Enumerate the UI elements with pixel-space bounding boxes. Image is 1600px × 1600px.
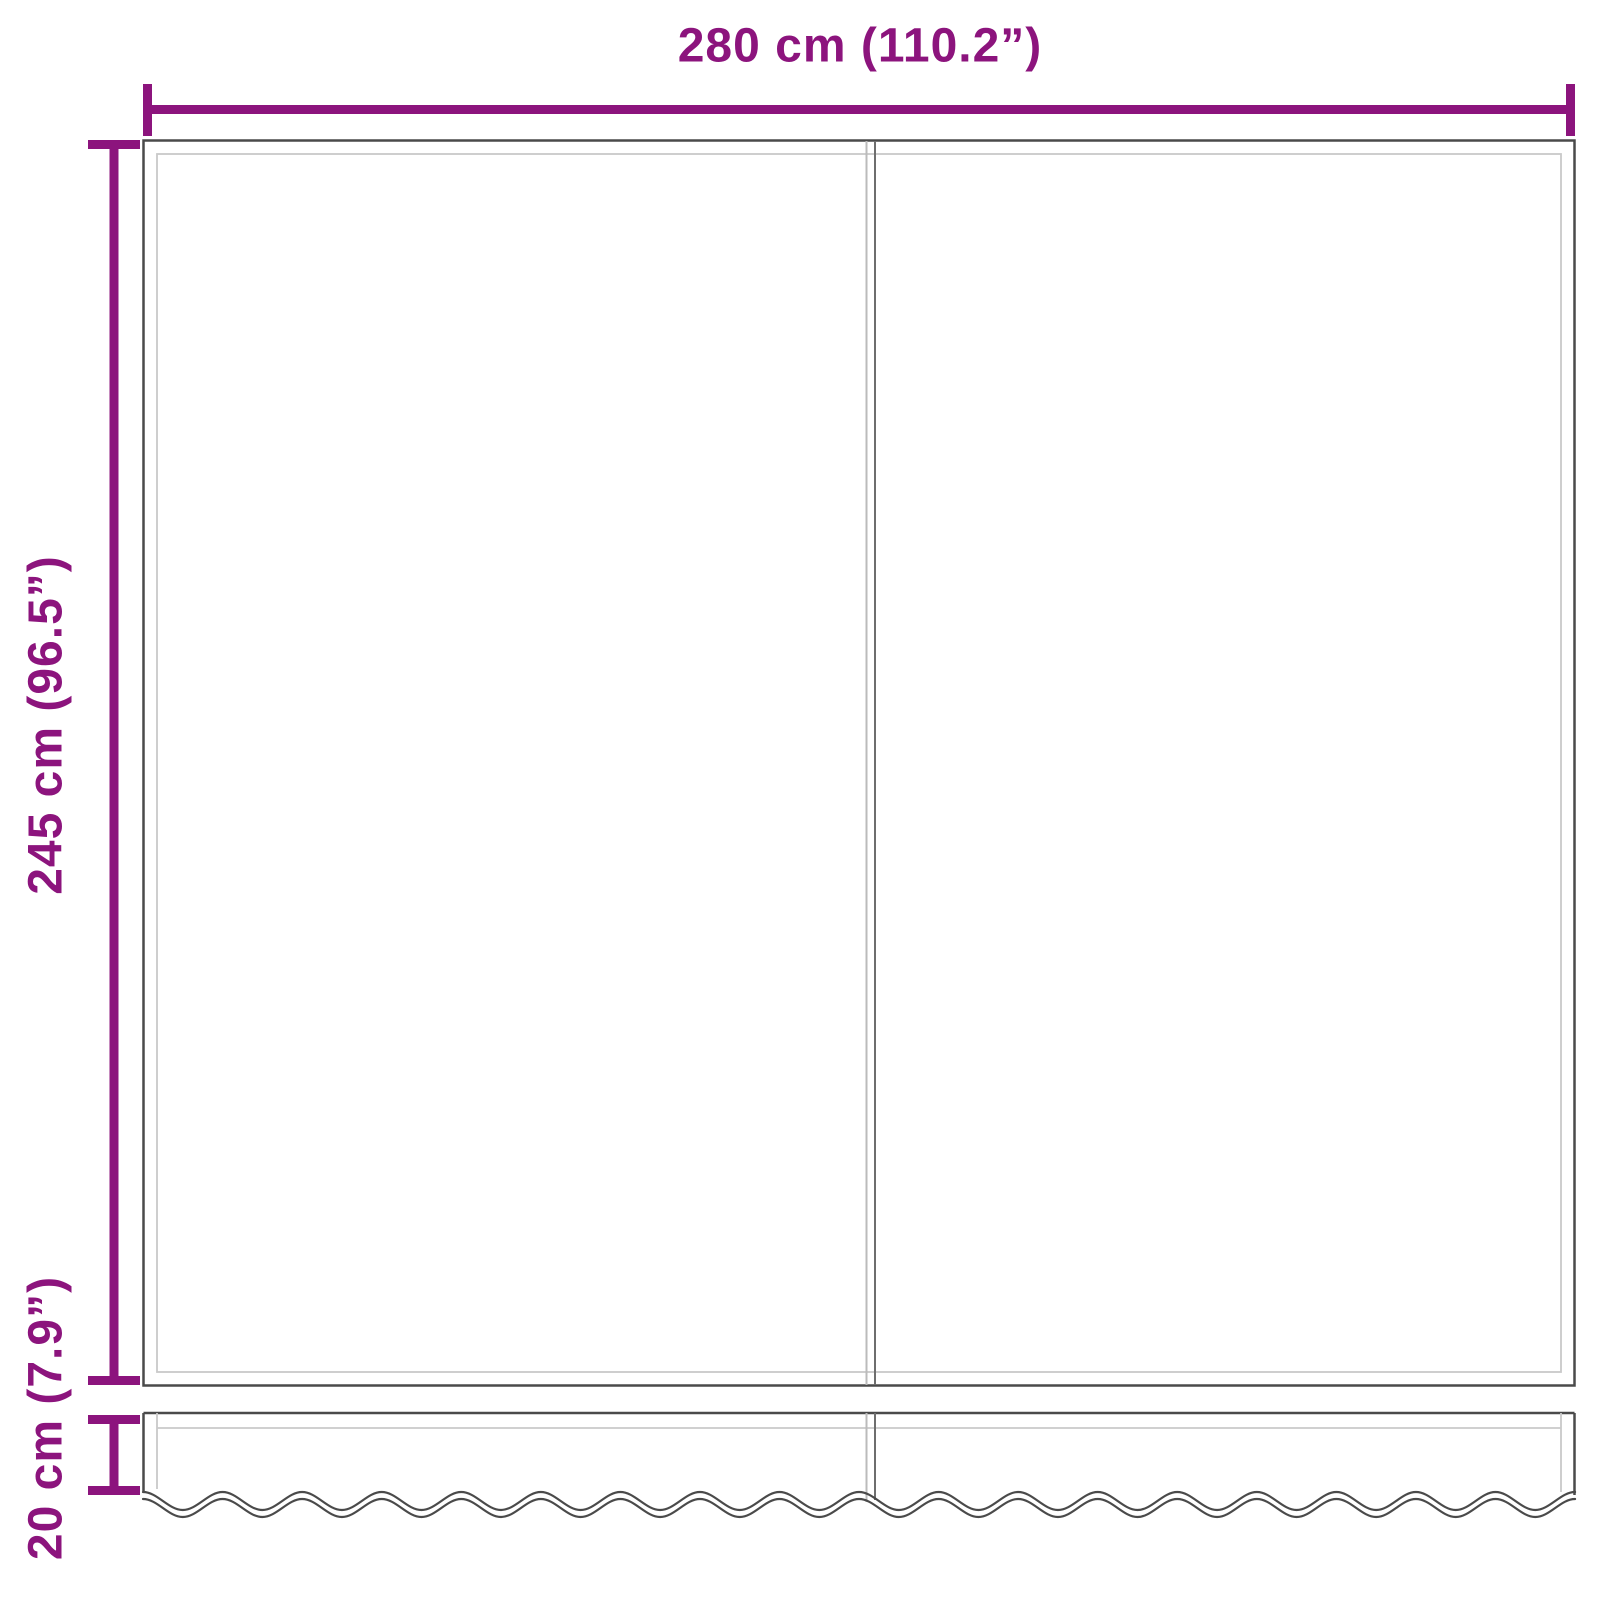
valance-panel (143, 1413, 1575, 1517)
fabric-outer-edge (144, 141, 1575, 1386)
valance-scalloped-edge-top (143, 1492, 1575, 1510)
valance-height-dimension-label: 20 cm (7.9”) (20, 1276, 73, 1560)
height-dimension: 245 cm (96.5”) (20, 140, 141, 1385)
awning-fabric-panel (144, 141, 1575, 1386)
height-dimension-label: 245 cm (96.5”) (20, 555, 73, 895)
valance-height-dimension: 20 cm (7.9”) (20, 1276, 141, 1560)
awning-dimension-diagram: 280 cm (110.2”) 245 cm (96.5”) 20 cm (7.… (0, 0, 1600, 1600)
width-dimension-label: 280 cm (110.2”) (678, 20, 1043, 73)
diagram-canvas: 280 cm (110.2”) 245 cm (96.5”) 20 cm (7.… (0, 0, 1600, 1600)
valance-scalloped-edge-bottom (143, 1499, 1575, 1517)
width-dimension: 280 cm (110.2”) (143, 20, 1575, 137)
